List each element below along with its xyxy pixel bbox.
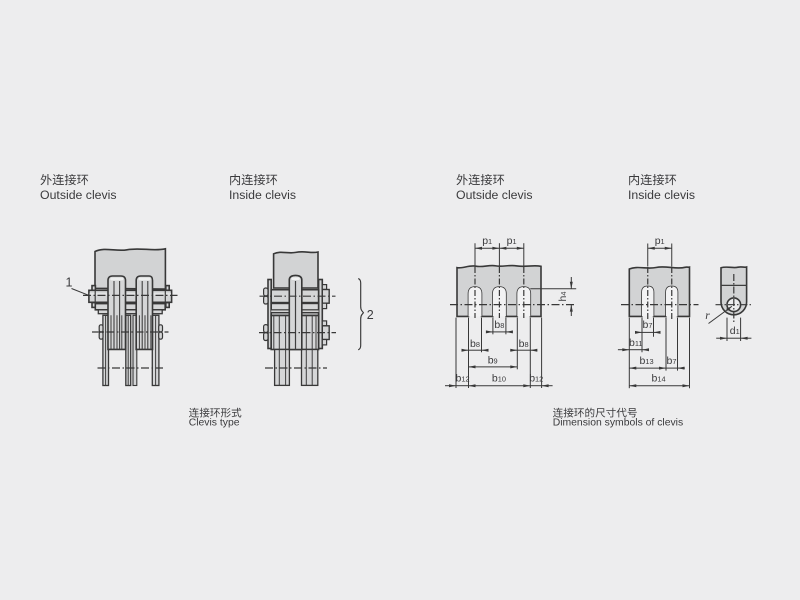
svg-text:b8: b8 (494, 319, 504, 331)
svg-text:b12: b12 (456, 373, 470, 385)
svg-text:b11: b11 (629, 337, 643, 349)
svg-text:Clevis type: Clevis type (189, 418, 240, 429)
svg-text:Inside clevis: Inside clevis (229, 188, 296, 202)
svg-text:p1: p1 (482, 235, 492, 247)
svg-text:b7: b7 (667, 355, 677, 367)
svg-text:b8: b8 (470, 338, 480, 350)
svg-text:b8: b8 (519, 338, 529, 350)
svg-text:r: r (705, 310, 710, 322)
svg-text:p1: p1 (507, 235, 517, 247)
svg-text:b10: b10 (492, 373, 506, 385)
svg-text:b7: b7 (643, 319, 653, 331)
svg-text:b9: b9 (488, 354, 498, 366)
svg-text:b12: b12 (529, 373, 543, 385)
svg-text:h4: h4 (557, 292, 569, 302)
svg-text:d1: d1 (730, 325, 740, 337)
svg-text:2: 2 (367, 308, 374, 322)
svg-text:p1: p1 (655, 235, 665, 247)
svg-text:Outside clevis: Outside clevis (456, 188, 533, 202)
svg-text:1: 1 (66, 276, 73, 290)
svg-text:Dimension symbols of clevis: Dimension symbols of clevis (553, 418, 684, 429)
svg-text:Inside clevis: Inside clevis (628, 188, 695, 202)
svg-text:Outside clevis: Outside clevis (40, 188, 117, 202)
svg-text:b13: b13 (640, 355, 654, 367)
svg-text:b14: b14 (652, 373, 666, 385)
